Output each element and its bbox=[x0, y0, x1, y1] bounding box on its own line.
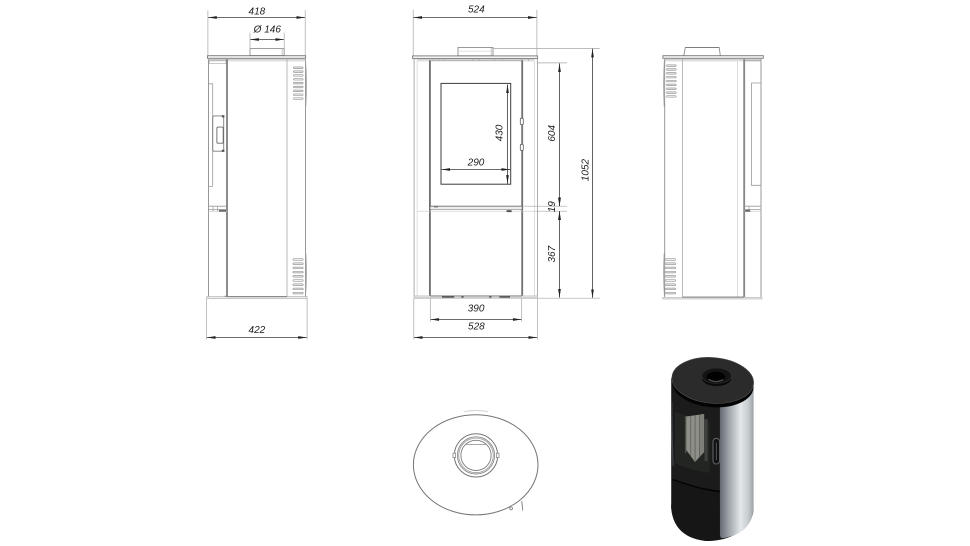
svg-text:19: 19 bbox=[547, 201, 558, 213]
svg-text:1052: 1052 bbox=[581, 159, 592, 182]
svg-text:418: 418 bbox=[249, 7, 266, 18]
svg-text:528: 528 bbox=[468, 321, 485, 332]
svg-text:604: 604 bbox=[547, 125, 558, 142]
svg-text:524: 524 bbox=[468, 5, 485, 16]
svg-text:290: 290 bbox=[467, 157, 485, 168]
svg-text:367: 367 bbox=[547, 245, 558, 262]
svg-text:430: 430 bbox=[494, 124, 505, 141]
svg-text:422: 422 bbox=[249, 325, 266, 336]
svg-text:390: 390 bbox=[468, 304, 485, 315]
svg-text:Ø 146: Ø 146 bbox=[253, 25, 282, 36]
